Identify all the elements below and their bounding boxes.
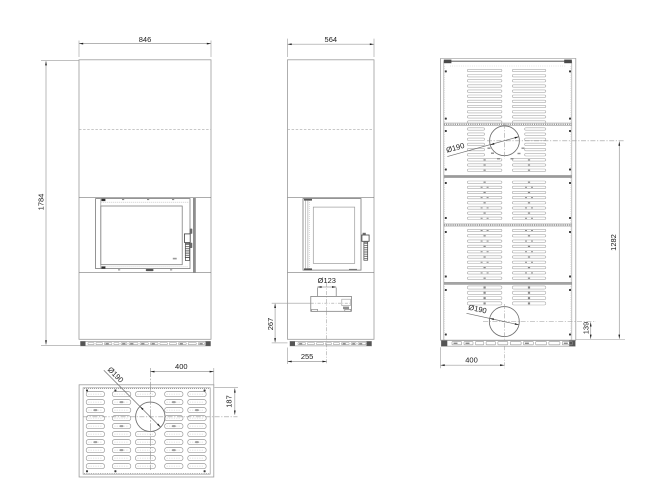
svg-text:Ø123: Ø123 <box>318 276 336 285</box>
svg-text:564: 564 <box>325 35 338 44</box>
svg-text:400: 400 <box>465 355 478 364</box>
svg-text:255: 255 <box>301 352 314 361</box>
svg-text:1282: 1282 <box>609 234 618 251</box>
svg-text:1784: 1784 <box>37 194 46 211</box>
svg-text:139: 139 <box>581 322 590 335</box>
svg-text:846: 846 <box>139 35 152 44</box>
svg-text:187: 187 <box>225 395 234 408</box>
svg-text:267: 267 <box>266 318 275 331</box>
svg-text:400: 400 <box>175 362 188 371</box>
